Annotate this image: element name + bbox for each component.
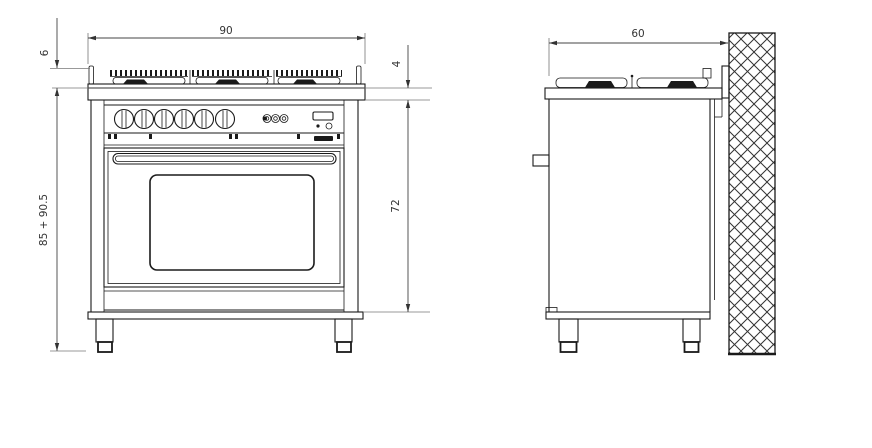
burner-knob <box>135 110 154 129</box>
side-cabinet <box>533 99 722 319</box>
leg <box>335 319 352 342</box>
hinge-tick <box>337 134 340 139</box>
side-hob-profile <box>556 69 711 88</box>
leg <box>559 319 578 342</box>
wall-section <box>728 33 776 354</box>
hinge-tick <box>229 134 232 139</box>
burner-knobs <box>115 110 235 129</box>
dim-label-body-height: 72 <box>390 199 402 212</box>
wall-hatch <box>729 33 775 354</box>
side-view: 60 <box>533 28 776 354</box>
door-handle-inner <box>116 156 334 162</box>
door-window <box>150 175 314 270</box>
hob-right-rail <box>357 66 362 84</box>
hob-tray <box>88 84 365 88</box>
side-legs <box>559 319 700 352</box>
hinge-tick <box>297 134 300 139</box>
dim-label-hob-height: 6 <box>39 49 51 56</box>
dim-label-overall-height: 85 + 90.5 <box>38 194 50 246</box>
hinge-tick <box>114 134 117 139</box>
control-panel <box>104 105 344 133</box>
burner-knob <box>115 110 134 129</box>
burner-cap <box>215 80 240 85</box>
adjustable-foot <box>98 342 112 352</box>
adjustable-foot <box>337 342 351 352</box>
burner-cap <box>123 80 148 85</box>
side-dimensions: 60 <box>549 28 728 76</box>
front-view: 90 6 85 + 90.5 4 72 <box>38 18 432 352</box>
side-base-plinth <box>546 312 710 319</box>
trim-band <box>104 134 344 145</box>
hinge-tick <box>108 134 111 139</box>
front-dimensions: 90 6 85 + 90.5 4 72 <box>38 18 432 351</box>
oven-door <box>104 148 344 287</box>
burner-cap <box>293 80 317 85</box>
worktop-slab <box>88 88 365 100</box>
adjustable-foot <box>561 342 577 352</box>
base-plinth <box>88 312 363 319</box>
clock-display <box>313 112 333 129</box>
burner-support <box>113 78 185 85</box>
door-handle <box>113 154 336 165</box>
technical-drawing-canvas: 90 6 85 + 90.5 4 72 <box>0 0 872 448</box>
front-legs <box>96 319 352 352</box>
side-burner-cap <box>585 81 615 88</box>
adjustable-foot <box>685 342 699 352</box>
burner-knob <box>195 110 214 129</box>
dim-label-width: 90 <box>219 25 232 37</box>
dim-label-worktop-thickness: 4 <box>391 60 403 67</box>
rear-grate-upturn <box>703 69 711 79</box>
display-button <box>326 123 332 129</box>
vent-grille <box>314 136 333 141</box>
dim-label-depth: 60 <box>631 28 644 40</box>
hinge-tick <box>149 134 152 139</box>
side-door-handle <box>533 155 549 166</box>
leg <box>683 319 700 342</box>
range-cooker-dimension-drawing: 90 6 85 + 90.5 4 72 <box>0 0 872 448</box>
rear-wall-spacer <box>722 66 729 98</box>
door-outer-frame <box>104 148 344 287</box>
burner-knob <box>175 110 194 129</box>
hinge-tick <box>235 134 238 139</box>
burner-knob <box>216 110 235 129</box>
burner-knob <box>155 110 174 129</box>
storage-drawer <box>104 291 344 310</box>
door-inner-frame <box>108 152 340 284</box>
side-burner-cap <box>667 81 697 88</box>
leg <box>96 319 113 342</box>
side-worktop-slab <box>545 88 722 99</box>
display-dot <box>316 124 319 127</box>
hob-assembly <box>88 66 365 88</box>
cabinet <box>91 100 358 312</box>
base-lip <box>546 308 557 313</box>
